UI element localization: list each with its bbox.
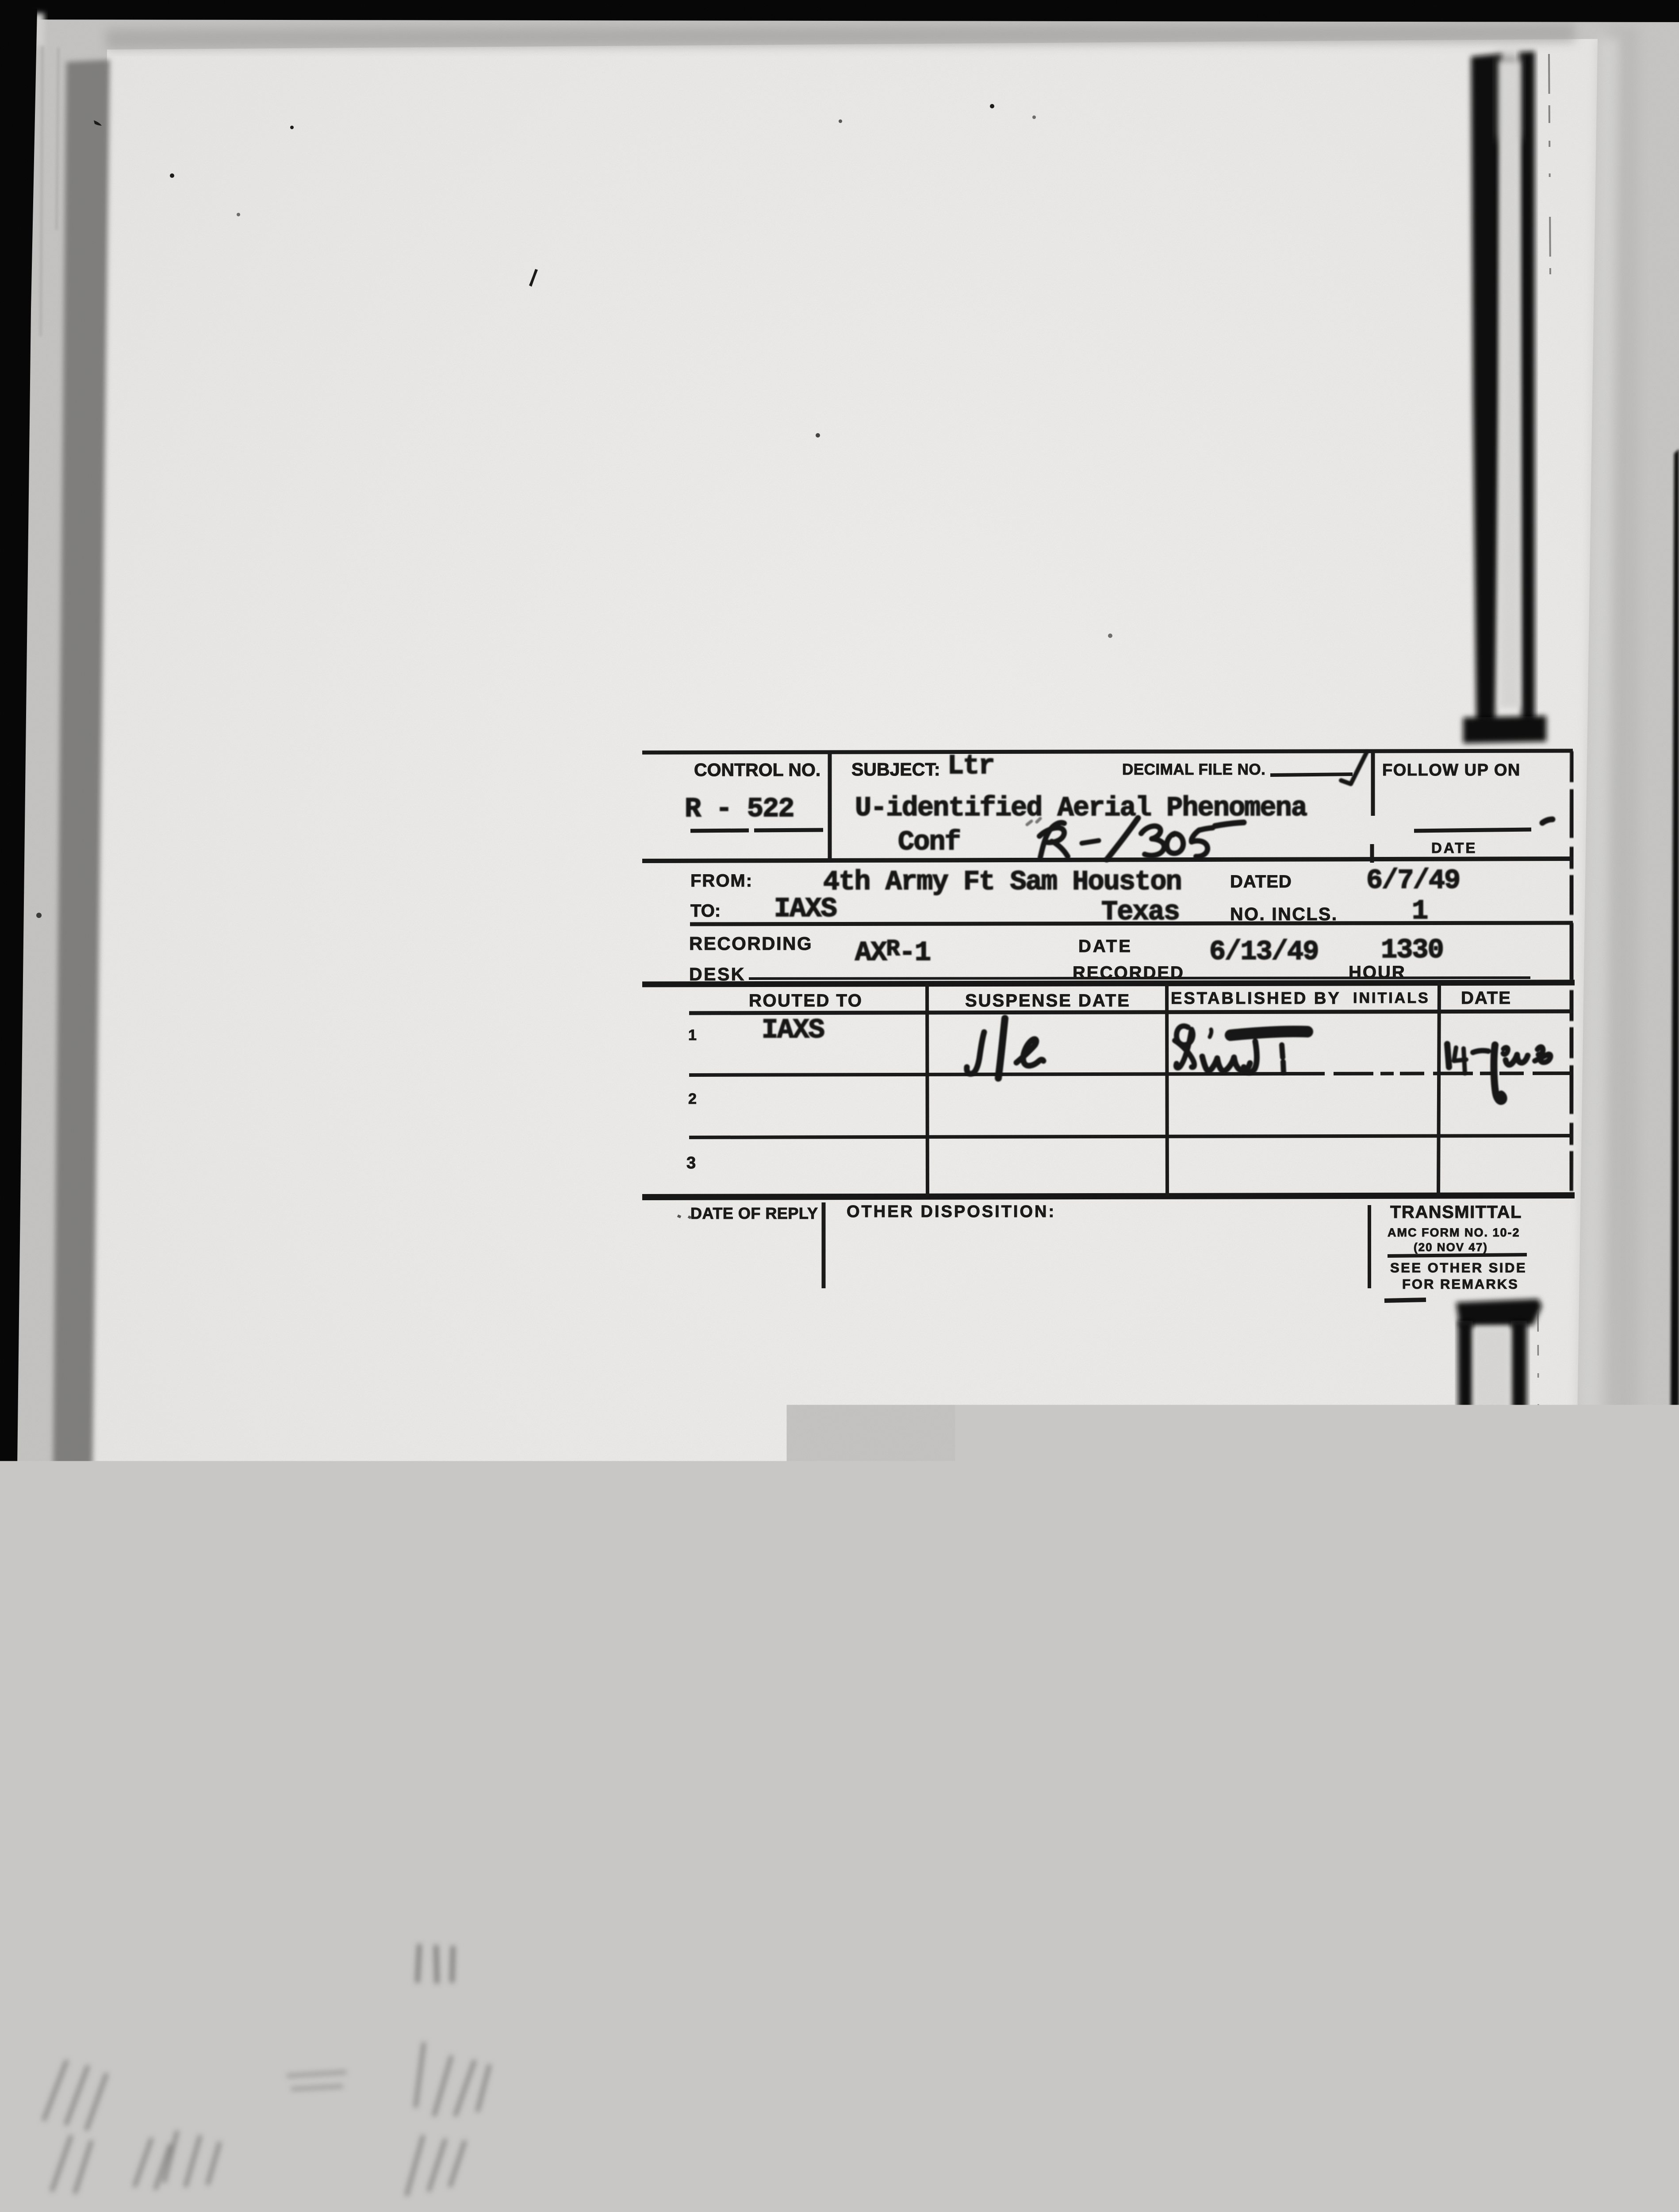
svg-text:1: 1 — [688, 1027, 697, 1044]
svg-text:NO. INCLS.: NO. INCLS. — [1230, 904, 1338, 924]
svg-text:FROM:: FROM: — [690, 871, 753, 891]
svg-text:TRANSMITTAL: TRANSMITTAL — [1390, 1202, 1522, 1222]
svg-text:CONTROL NO.: CONTROL NO. — [694, 760, 820, 780]
svg-text:SUSPENSE DATE: SUSPENSE DATE — [965, 991, 1131, 1010]
svg-text:(20 NOV 47): (20 NOV 47) — [1414, 1240, 1488, 1254]
svg-text:2: 2 — [688, 1091, 697, 1107]
svg-text:IAXS: IAXS — [774, 893, 837, 925]
svg-text:1: 1 — [1412, 895, 1427, 927]
svg-text:TO:: TO: — [690, 901, 721, 921]
svg-text:4th Army Ft Sam Houston: 4th Army Ft Sam Houston — [823, 866, 1181, 898]
svg-text:Conf: Conf — [898, 826, 960, 858]
svg-text:6/13/49: 6/13/49 — [1209, 936, 1318, 968]
svg-text:U-identified Aerial Phenomena: U-identified Aerial Phenomena — [855, 792, 1307, 824]
svg-text:RECORDED: RECORDED — [1073, 963, 1184, 983]
svg-text:SEE OTHER SIDE: SEE OTHER SIDE — [1390, 1260, 1527, 1275]
svg-text:1330: 1330 — [1381, 934, 1443, 966]
svg-text:FOLLOW UP ON: FOLLOW UP ON — [1382, 761, 1521, 780]
svg-text:OTHER DISPOSITION:: OTHER DISPOSITION: — [847, 1202, 1056, 1221]
svg-text:FOR REMARKS: FOR REMARKS — [1402, 1276, 1519, 1292]
svg-text:ROUTED TO: ROUTED TO — [749, 991, 862, 1010]
svg-text:Ltr: Ltr — [947, 750, 994, 782]
svg-text:IAXS: IAXS — [762, 1014, 824, 1046]
svg-text:DESK: DESK — [689, 964, 746, 984]
svg-text:DATE: DATE — [1431, 840, 1477, 856]
svg-text:DECIMAL FILE NO.: DECIMAL FILE NO. — [1122, 761, 1265, 778]
svg-text:6/7/49: 6/7/49 — [1366, 865, 1460, 896]
svg-text:SUBJECT:: SUBJECT: — [851, 759, 940, 780]
svg-text:DATE OF REPLY: DATE OF REPLY — [690, 1204, 818, 1222]
svg-text:DATE: DATE — [1078, 937, 1132, 956]
svg-text:Texas: Texas — [1101, 896, 1179, 928]
svg-text:RECORDING: RECORDING — [689, 933, 813, 954]
svg-text:DATE: DATE — [1461, 988, 1511, 1008]
svg-text:DATED: DATED — [1230, 872, 1292, 891]
svg-text:ESTABLISHED BY: ESTABLISHED BY — [1171, 989, 1341, 1008]
svg-text:INITIALS: INITIALS — [1353, 990, 1430, 1006]
svg-text:3: 3 — [686, 1154, 696, 1172]
svg-text:R - 522: R - 522 — [685, 793, 793, 825]
svg-text:AMC FORM NO. 10-2: AMC FORM NO. 10-2 — [1388, 1226, 1520, 1239]
